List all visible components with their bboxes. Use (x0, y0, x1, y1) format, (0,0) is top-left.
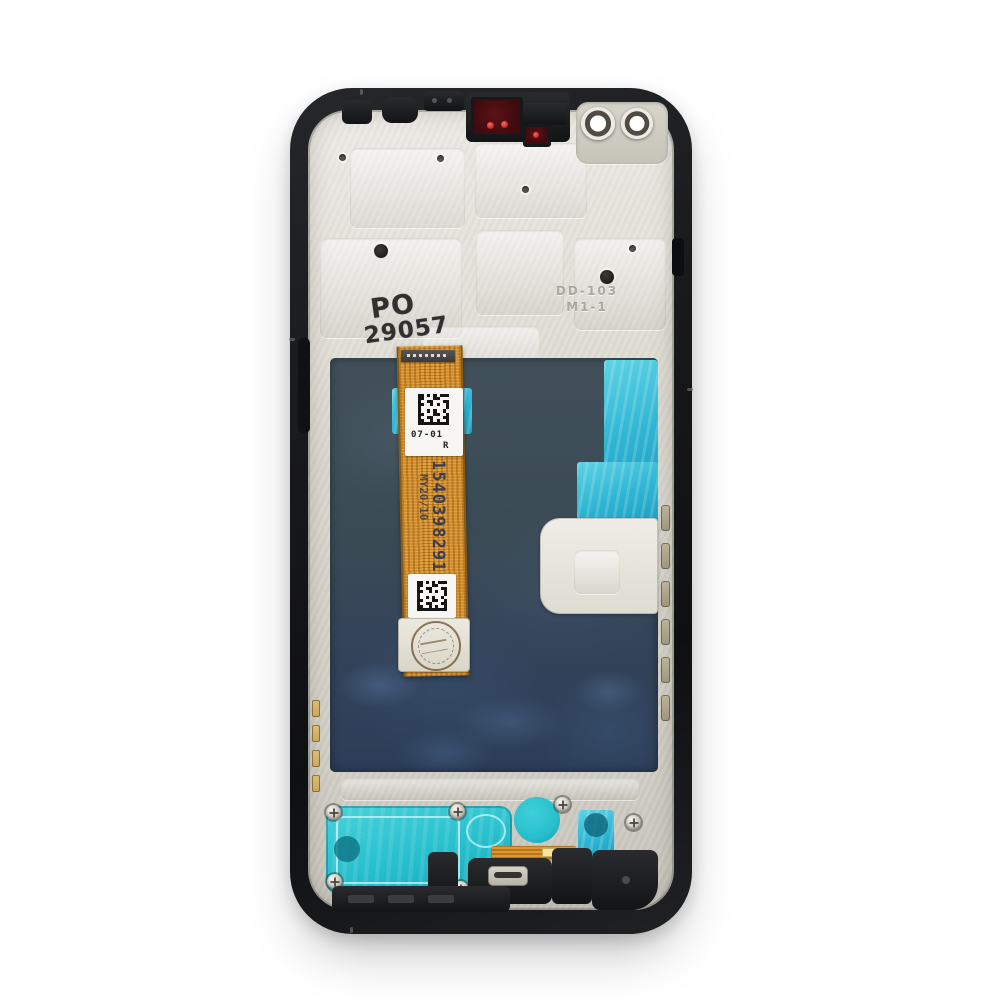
screw-hole (629, 245, 636, 252)
screw-hole (339, 154, 346, 161)
speaker-port (334, 836, 360, 862)
antenna-line (289, 338, 295, 341)
graphite-mottle (330, 648, 658, 772)
bottom-grille-bar (332, 886, 510, 912)
usb-port-cutout (488, 866, 528, 886)
sensor-housing-small (523, 103, 567, 125)
antenna-line (350, 927, 353, 933)
qc-ink-stamp (411, 621, 461, 671)
shield-emboss (475, 143, 587, 218)
front-camera-hole-right (621, 108, 653, 139)
grille-slot (388, 895, 414, 903)
gold-contact-slot (312, 750, 320, 767)
gold-contact-slot (312, 725, 320, 742)
top-bracket (424, 91, 464, 111)
screw-hole (522, 186, 529, 193)
screw (450, 804, 465, 819)
frame-right-slot (672, 238, 684, 276)
screw (626, 815, 641, 830)
adhesive-cyan-step (577, 462, 658, 522)
flex-label-bottom (408, 574, 456, 618)
sensor-dot (501, 121, 508, 128)
embossed-line1: DD-103 (542, 284, 632, 300)
flex-stiffener-band (401, 350, 455, 362)
proximity-sensor-window (471, 97, 523, 137)
top-bracket (342, 100, 372, 124)
antenna-contact-slot (661, 695, 670, 721)
datamatrix-code (417, 581, 447, 611)
antenna-contact-slot (661, 543, 670, 569)
antenna-contact-slot (661, 581, 670, 607)
antenna-contact-slot (661, 619, 670, 645)
bottom-bracket (552, 848, 592, 904)
mic-hole-pad (584, 813, 608, 837)
teal-circle-pad (514, 797, 560, 843)
flex-date-code: 07-01 (411, 430, 443, 440)
tab-emboss (574, 550, 620, 594)
grille-slot (428, 895, 454, 903)
shield-emboss (350, 148, 465, 228)
ambient-sensor-window (523, 124, 551, 147)
bracket-hole (432, 98, 437, 103)
datamatrix-code (418, 394, 449, 425)
microphone-hole (374, 244, 388, 258)
embossed-text: DD-103 M1-1 (542, 284, 632, 315)
shield-emboss (340, 778, 640, 800)
speaker-outline (466, 814, 506, 848)
antenna-line (360, 89, 363, 95)
antenna-line (687, 388, 693, 391)
screw (555, 797, 570, 812)
stamp-text: PO 29057 (369, 286, 450, 347)
flex-side-code: R (443, 441, 449, 451)
screw (326, 805, 341, 820)
shield-tab (540, 518, 658, 614)
frame-left-rib (298, 338, 310, 433)
speaker-hole (622, 876, 630, 884)
loudspeaker-housing (592, 850, 658, 910)
serial-number: 1540398291 (428, 460, 448, 572)
sensor-dot (487, 122, 494, 129)
product-photo: PO 29057 DD-103 M1-1 (0, 0, 1000, 1000)
sensor-dot (533, 132, 539, 138)
flex-label-top: 07-01 R (405, 388, 463, 456)
phone-frame: PO 29057 DD-103 M1-1 (290, 88, 692, 934)
bracket-hole (447, 98, 452, 103)
screw-hole (437, 155, 444, 162)
embossed-line2: M1-1 (542, 300, 632, 316)
antenna-contact-slot (661, 657, 670, 683)
gold-contact-slot (312, 775, 320, 792)
antenna-contact-slot (661, 505, 670, 531)
earpiece-slot (382, 97, 418, 123)
grille-slot (348, 895, 374, 903)
gold-contact-slot (312, 700, 320, 717)
front-camera-hole-left (581, 107, 615, 140)
sensor-hole (600, 270, 614, 284)
